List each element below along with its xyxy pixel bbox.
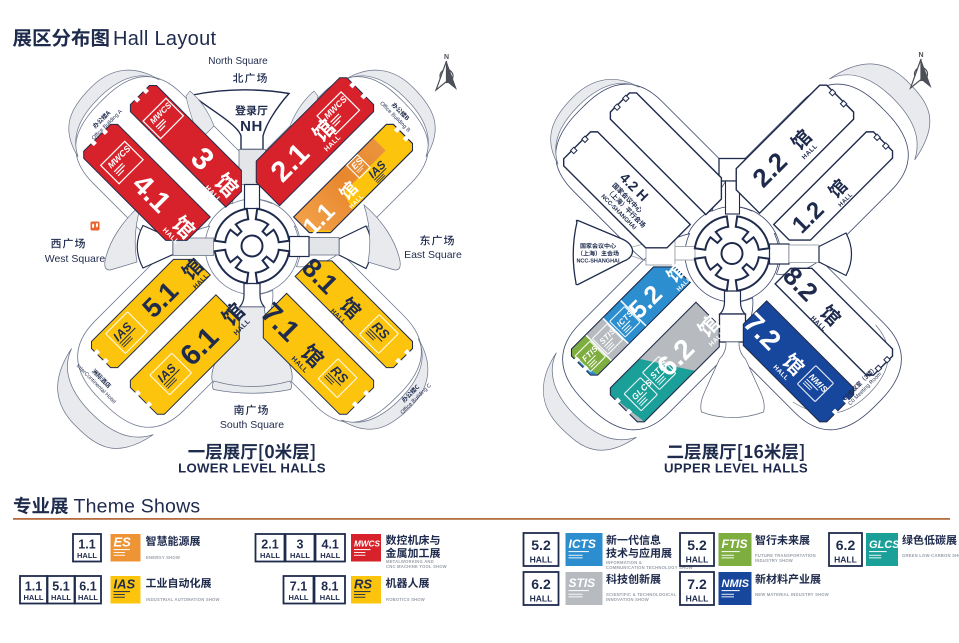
svg-text:HALL: HALL [530, 594, 553, 604]
svg-text:6.1: 6.1 [79, 579, 96, 593]
svg-text:HALL: HALL [686, 555, 709, 565]
svg-text:HALL: HALL [290, 551, 310, 560]
svg-text:N: N [918, 52, 923, 59]
svg-text:HALL: HALL [78, 593, 98, 602]
svg-text:GLCS: GLCS [869, 539, 900, 551]
svg-text:5.2: 5.2 [531, 537, 551, 553]
svg-text:GREEN LOW-CARBON SHOW: GREEN LOW-CARBON SHOW [902, 553, 959, 558]
svg-text:West Square: West Square [45, 253, 106, 265]
svg-text:INNOVATION SHOW: INNOVATION SHOW [606, 597, 649, 602]
svg-text:HALL: HALL [320, 551, 340, 560]
svg-text:MWCS: MWCS [354, 539, 380, 548]
svg-text:HALL: HALL [24, 593, 44, 602]
svg-text:6.2: 6.2 [531, 576, 551, 592]
svg-text:N: N [444, 54, 449, 61]
svg-text:RS: RS [354, 576, 372, 591]
svg-text:5.1: 5.1 [52, 579, 69, 593]
svg-text:1.1: 1.1 [25, 579, 42, 593]
svg-text:HALL: HALL [289, 593, 309, 602]
svg-text:ES: ES [114, 534, 132, 549]
svg-text:UPPER LEVEL HALLS: UPPER LEVEL HALLS [664, 461, 808, 476]
svg-text:7.2: 7.2 [687, 576, 707, 592]
svg-text:NH: NH [240, 118, 263, 135]
svg-text:INDUSTRY SHOW: INDUSTRY SHOW [755, 558, 793, 563]
svg-text:HALL: HALL [530, 555, 553, 565]
svg-text:Theme Shows: Theme Shows [74, 496, 201, 518]
svg-text:HALL: HALL [260, 551, 280, 560]
svg-text:Hall Layout: Hall Layout [113, 28, 217, 50]
svg-text:South Square: South Square [220, 419, 284, 431]
svg-text:LOWER LEVEL HALLS: LOWER LEVEL HALLS [178, 461, 326, 476]
svg-text:ICTS: ICTS [569, 537, 596, 551]
svg-text:ENERGY SHOW: ENERGY SHOW [146, 555, 180, 560]
svg-text:NEW MATERIAL INDUSTRY SHOW: NEW MATERIAL INDUSTRY SHOW [755, 592, 829, 597]
svg-text:6.2: 6.2 [836, 537, 856, 553]
svg-text:HALL: HALL [51, 593, 71, 602]
svg-text:ROBOTICS SHOW: ROBOTICS SHOW [386, 597, 425, 602]
svg-text:North Square: North Square [208, 56, 268, 67]
svg-text:CNC MACHINE TOOL SHOW: CNC MACHINE TOOL SHOW [386, 564, 447, 569]
svg-text:HALL: HALL [320, 593, 340, 602]
svg-text:HALL: HALL [77, 551, 97, 560]
svg-text:FTIS: FTIS [722, 537, 748, 551]
svg-text:3: 3 [297, 537, 304, 551]
svg-text:INDUSTRIAL AUTOMATION SHOW: INDUSTRIAL AUTOMATION SHOW [146, 597, 220, 602]
svg-text:NMIS: NMIS [722, 578, 750, 590]
svg-text:East Square: East Square [404, 249, 462, 261]
svg-text:2.1: 2.1 [261, 537, 278, 551]
svg-text:7.1: 7.1 [290, 579, 307, 593]
svg-text:8.1: 8.1 [321, 579, 338, 593]
svg-text:STIS: STIS [569, 576, 596, 590]
svg-text:5.2: 5.2 [687, 537, 707, 553]
svg-text:NCC-SHANGHAI: NCC-SHANGHAI [576, 259, 620, 265]
svg-text:HALL: HALL [834, 555, 857, 565]
svg-text:HALL: HALL [686, 594, 709, 604]
svg-text:IAS: IAS [114, 576, 136, 591]
svg-text:1.1: 1.1 [78, 537, 95, 551]
svg-text:4.1: 4.1 [322, 537, 339, 551]
